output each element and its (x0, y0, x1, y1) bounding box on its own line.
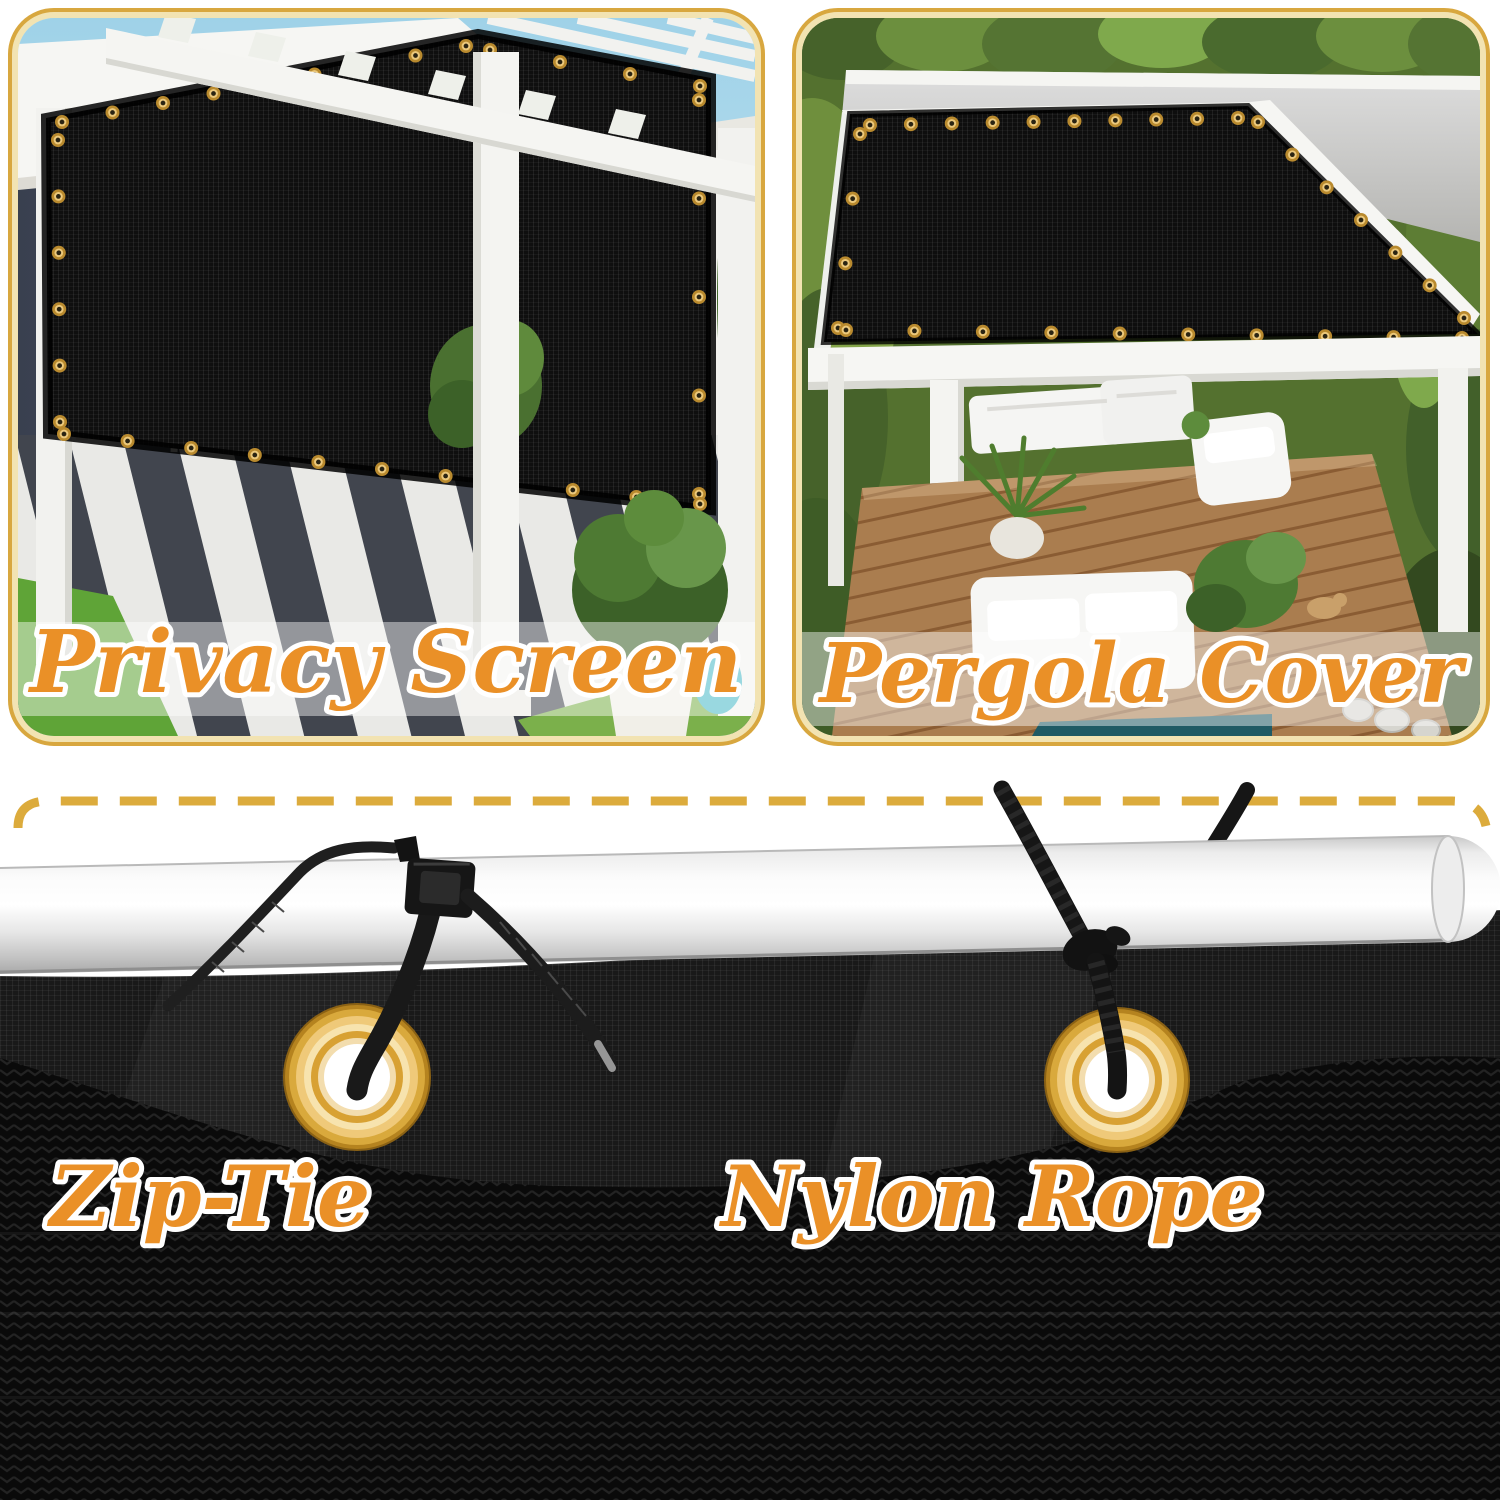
caption-band-pergola: Pergola Cover (802, 632, 1480, 726)
pergola-cover-label: Pergola Cover (818, 626, 1468, 722)
attachment-demo-section: Zip-Tie Nylon Rope (0, 746, 1500, 1500)
pergola-cover-photo: Pergola Cover (802, 18, 1480, 736)
post-front-right (1438, 368, 1468, 632)
panel-pergola-cover: Pergola Cover (792, 8, 1490, 746)
product-collage: Privacy Screen (0, 0, 1500, 1500)
caption-pergola: Pergola Cover (802, 632, 1480, 726)
caption-privacy: Privacy Screen (18, 622, 755, 716)
post-back-left (828, 354, 844, 586)
privacy-screen-label: Privacy Screen (27, 612, 742, 713)
caption-band-privacy: Privacy Screen (18, 622, 755, 716)
privacy-screen-photo: Privacy Screen (18, 18, 755, 736)
nylon-rope-label: Nylon Rope (718, 1147, 1263, 1246)
zip-tie-head (404, 858, 476, 919)
zip-tie-label: Zip-Tie (47, 1147, 371, 1246)
panel-privacy-screen: Privacy Screen (8, 8, 765, 746)
